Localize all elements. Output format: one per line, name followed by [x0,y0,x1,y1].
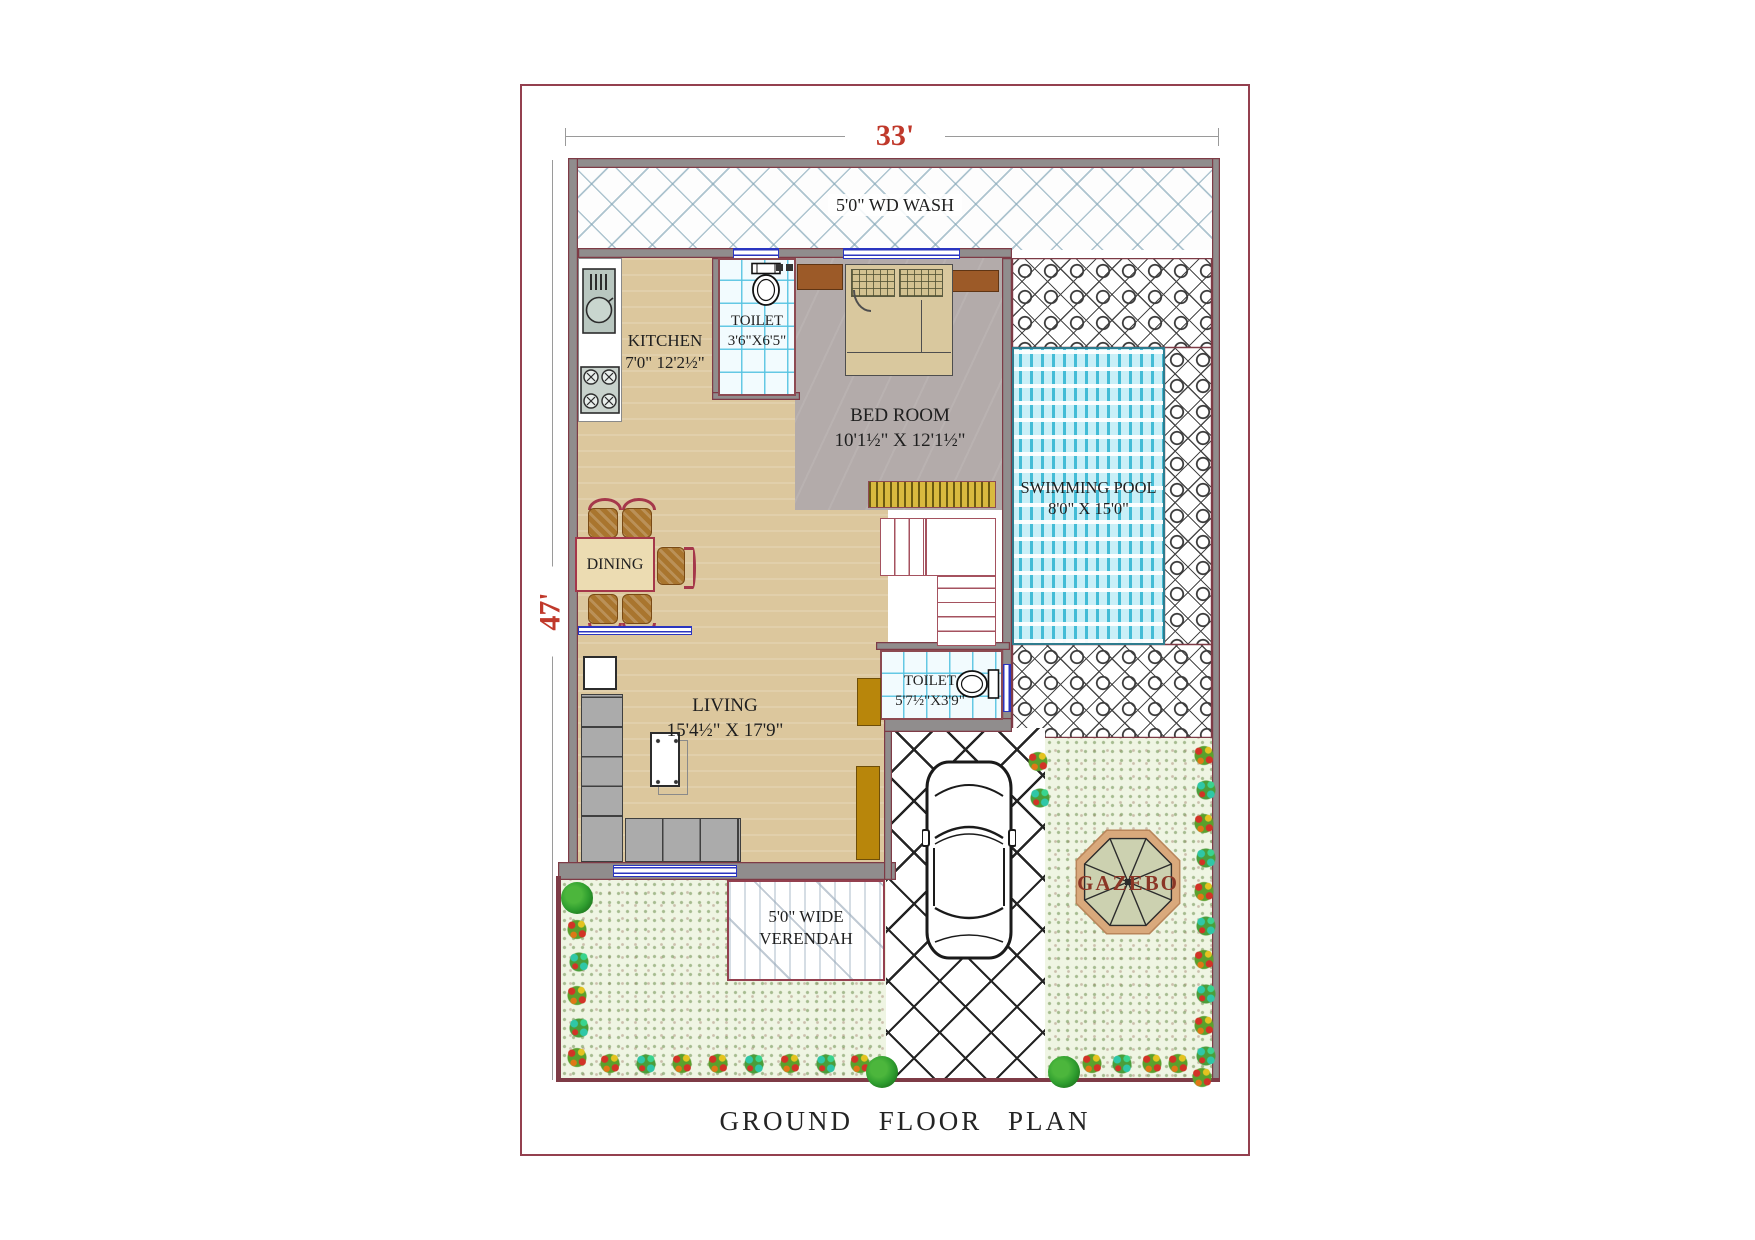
living-shelf [578,626,692,635]
bush [866,1056,898,1088]
flower [634,1052,658,1076]
toilet2-wall-bottom [884,718,1012,732]
gazebo-label: GAZEBO [1068,870,1188,897]
dining-chair [588,508,618,538]
dining-chair-arc [684,547,696,589]
garden-wall-left [556,876,561,1082]
wd-wash-text: 5'0" WD WASH [828,194,962,216]
stair-railing [868,481,996,508]
verendah-label: 5'0" WIDE VERENDAH [727,906,885,950]
flower [814,1052,838,1076]
stair-flight-upper [880,518,926,576]
flower [1080,1052,1104,1076]
verendah-line2: VERENDAH [727,928,885,950]
kitchen-size: 7'0" 12'2½" [595,352,735,374]
gazebo: GAZEBO [1068,822,1188,942]
flower [1192,812,1216,836]
flower [1140,1052,1164,1076]
toilet1-name: TOILET [710,312,804,332]
bush [1048,1056,1080,1088]
flower [565,1046,589,1070]
car-icon [922,756,1016,964]
sofa-left [581,694,623,816]
paving-right [1164,347,1212,645]
living-label: LIVING 15'4½" X 17'9" [635,694,815,743]
dining-label: DINING [577,555,653,576]
paving-bottom [1012,644,1212,738]
sofa-corner [581,816,623,862]
living-window [613,865,737,877]
compound-wall-top [568,158,1220,168]
living-size: 15'4½" X 17'9" [635,719,815,744]
verendah-line1: 5'0" WIDE [727,906,885,928]
flower [1166,1052,1190,1076]
toilet2-label: TOILET 5'7½"X3'9" [882,672,978,711]
flower [1190,1066,1214,1090]
living-name: LIVING [635,694,815,719]
flower [1192,744,1216,768]
flower [1194,914,1218,938]
pool-label: SWIMMING POOL 8'0" X 15'0" [1012,477,1165,520]
flower [567,950,591,974]
bedroom-side-table-left [797,264,843,290]
flower [1194,846,1218,870]
side-box [583,656,617,690]
flower [1192,1014,1216,1038]
flower [1110,1052,1134,1076]
bed-pillow-right [899,269,943,297]
flower [1194,982,1218,1006]
dining-table: DINING [575,537,655,592]
kitchen-name: KITCHEN [595,330,735,352]
bed-blanket-line [847,352,951,353]
flower [778,1052,802,1076]
sofa-bottom [625,818,741,862]
bush [561,882,593,914]
dimension-height-label: 47' [531,567,570,657]
bedroom-side-table-right [951,270,999,292]
building-wall-right [1002,258,1012,728]
toilet2-name: TOILET [882,672,978,692]
bedroom-label: BED ROOM 10'1½" X 12'1½" [795,404,1005,453]
flower [1026,750,1050,774]
dimension-line-33-tick-left [565,128,566,146]
page-title: GROUND FLOOR PLAN [605,1104,1205,1139]
wd-wash-label: 5'0" WD WASH [578,194,1212,217]
bedroom-name: BED ROOM [795,404,1005,429]
dimension-width-label: 33' [845,116,945,155]
flower [706,1052,730,1076]
flower [742,1052,766,1076]
paving-top [1012,258,1212,348]
toilet1-tap2 [786,264,793,271]
toilet2-size: 5'7½"X3'9" [882,692,978,712]
dining-chair [622,508,652,538]
compound-wall-right [1212,158,1220,1082]
main-door [856,766,880,860]
pool-size: 8'0" X 15'0" [1012,498,1165,519]
dimension-line-33-tick-right [1218,128,1219,146]
flower [598,1052,622,1076]
dining-chair [622,594,652,624]
flower [1192,948,1216,972]
pool-name: SWIMMING POOL [1012,477,1165,498]
dining-chair [588,594,618,624]
flower [1192,880,1216,904]
dining-chair [657,547,685,585]
bed-divider-line [921,300,922,352]
bedroom-window [843,248,960,259]
building-wall-left [568,158,578,880]
toilet2-door [857,678,881,726]
stair-flight-lower [937,576,996,646]
flower [565,918,589,942]
flower [670,1052,694,1076]
kitchen-label: KITCHEN 7'0" 12'2½" [595,330,735,374]
kitchen-sink-icon [582,268,616,334]
flower [1194,1044,1218,1068]
flower [567,1016,591,1040]
flower [565,984,589,1008]
flower [1194,778,1218,802]
bedroom-size: 10'1½" X 12'1½" [795,429,1005,454]
flower [1028,786,1052,810]
toilet1-tap [776,264,783,271]
stair-landing [926,518,996,576]
floor-plan-canvas: 33' 47' TOILET 3'6"X6'5" [0,0,1755,1240]
